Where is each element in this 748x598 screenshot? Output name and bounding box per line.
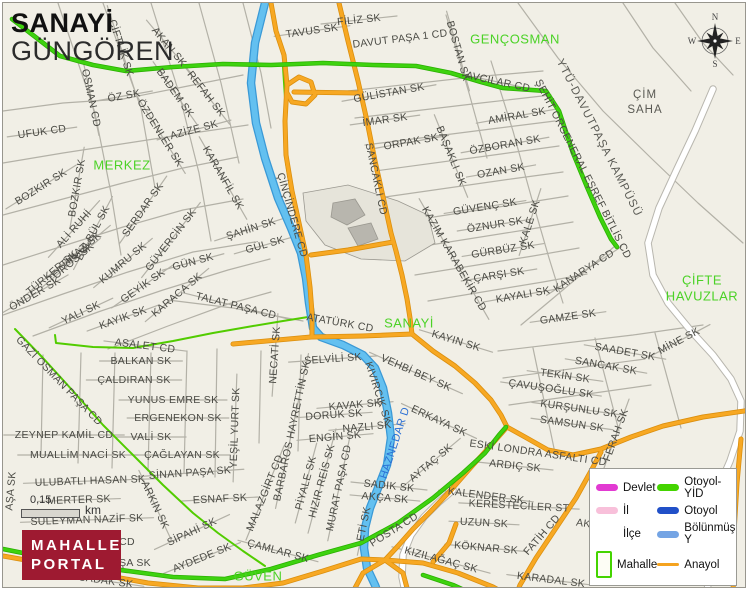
labelled-street: [350, 115, 419, 125]
labelled-street: [164, 543, 241, 574]
main-road-casing: [514, 452, 601, 587]
legend-label: Devlet: [623, 482, 656, 494]
labelled-street: [6, 165, 76, 209]
labelled-street: [530, 312, 606, 323]
minor-street: [3, 199, 243, 265]
labelled-street: [42, 238, 101, 287]
legend-swatch-icon: [657, 507, 679, 514]
legend-item-anayol: Anayol: [657, 559, 735, 571]
minor-street: [3, 75, 243, 111]
labelled-street: [20, 246, 83, 299]
labelled-street: [20, 518, 153, 523]
main-road: [294, 92, 358, 93]
labelled-street: [272, 314, 278, 396]
labelled-street: [461, 137, 549, 152]
labelled-street: [199, 137, 247, 220]
scale-unit: km: [85, 503, 101, 517]
labelled-street: [157, 120, 231, 140]
labelled-street: [449, 521, 519, 525]
labelled-street: [459, 503, 579, 509]
labelled-street: [112, 264, 175, 308]
minor-street: [33, 259, 270, 336]
labelled-street: [87, 305, 159, 331]
minor-street: [595, 338, 619, 431]
mahalle-portal-logo[interactable]: MAHALLE PORTAL: [22, 530, 121, 580]
labelled-street: [83, 61, 99, 136]
labelled-street: [96, 91, 153, 101]
labelled-street: [350, 495, 420, 501]
labelled-street: [139, 470, 171, 539]
labelled-street: [276, 354, 309, 509]
labelled-street: [584, 345, 665, 359]
labelled-street: [3, 275, 68, 313]
labelled-street: [48, 201, 99, 258]
labelled-street: [477, 462, 553, 470]
labelled-street: [445, 544, 527, 551]
labelled-street: [462, 244, 544, 257]
map-portal-screenshot: ÇİFTLİK SKAKAN SKBADEM SKREFAH SKOSMAN C…: [0, 0, 748, 598]
labelled-street: [603, 399, 629, 471]
legend: DevletOtoyol-YİDİlOtoyolİlçeBölünmüş YMa…: [589, 468, 737, 586]
labelled-street: [321, 16, 397, 24]
minor-street: [78, 353, 81, 463]
city-title: GÜNGÖREN: [11, 37, 174, 65]
minor-street: [259, 351, 261, 443]
legend-swatch-icon: [657, 563, 679, 566]
legend-item-mahalle: Mahalle: [596, 551, 657, 578]
minor-street: [148, 353, 151, 471]
legend-label: Mahalle: [617, 559, 657, 571]
compass-s: S: [712, 59, 717, 69]
legend-label: Otoyol-YİD: [684, 476, 735, 500]
labelled-street: [274, 26, 350, 37]
legend-label: Bölünmüş Y: [684, 522, 735, 546]
minor-street: [41, 355, 43, 455]
labelled-street: [531, 418, 613, 430]
minor-street: [415, 248, 579, 275]
labelled-street: [153, 62, 197, 125]
labelled-street: [215, 217, 288, 241]
labelled-street: [119, 176, 166, 244]
legend-item-b-l-nm-y: Bölünmüş Y: [657, 522, 735, 546]
labelled-street: [145, 268, 208, 321]
map-title: SANAYİ GÜNGÖREN: [11, 9, 174, 66]
compass-e: E: [735, 36, 741, 46]
legend-swatch-icon: [657, 484, 679, 491]
labelled-street: [461, 269, 536, 281]
scale-value: 0,15: [30, 494, 51, 506]
main-road: [507, 410, 745, 455]
labelled-street: [434, 115, 467, 198]
legend-swatch-icon: [657, 531, 679, 538]
legend-item-i-l: İl: [596, 505, 657, 517]
labelled-street: [501, 382, 602, 396]
legend-item-devlet: Devlet: [596, 482, 657, 494]
labelled-street: [476, 109, 557, 123]
labelled-street: [234, 236, 295, 254]
logo-line1: MAHALLE: [31, 536, 121, 556]
compass-n: N: [712, 12, 719, 22]
legend-swatch-icon: [596, 531, 618, 538]
minor-street: [112, 353, 115, 468]
labelled-street: [547, 247, 622, 295]
minor-street: [215, 349, 217, 477]
legend-item-i-l-e: İlçe: [596, 528, 657, 540]
legend-label: İl: [623, 505, 629, 517]
district-title: SANAYİ: [11, 9, 174, 37]
labelled-street: [70, 147, 84, 228]
labelled-street: [52, 225, 111, 274]
minor-street: [375, 146, 559, 171]
legend-label: İlçe: [623, 528, 641, 540]
labelled-street: [308, 429, 336, 533]
labelled-street: [233, 374, 237, 482]
legend-label: Otoyol: [684, 505, 717, 517]
minor-street: [521, 246, 615, 325]
legend-item-otoyol-yi-d: Otoyol-YİD: [657, 476, 735, 500]
labelled-street: [182, 497, 258, 501]
labelled-street: [7, 127, 76, 137]
minor-street: [503, 359, 645, 378]
logo-line2: PORTAL: [31, 555, 121, 575]
labelled-street: [162, 254, 224, 271]
main-road-casing: [412, 334, 507, 427]
legend-swatch-icon: [596, 507, 618, 514]
labelled-street: [23, 479, 156, 484]
scale-bar: [21, 509, 80, 518]
minor-street: [355, 95, 551, 118]
map-canvas[interactable]: ÇİFTLİK SKAKAN SKBADEM SKREFAH SKOSMAN C…: [2, 2, 746, 588]
main-road: [433, 524, 456, 562]
labelled-street: [402, 404, 477, 439]
labelled-street: [94, 238, 153, 287]
labelled-street: [49, 298, 113, 328]
labelled-street: [457, 219, 532, 231]
compass-rose-icon: N E S W: [687, 11, 743, 69]
legend-item-otoyol: Otoyol: [657, 505, 735, 517]
main-road: [339, 3, 412, 334]
legend-swatch-icon: [596, 484, 618, 491]
labelled-street: [135, 93, 186, 174]
minor-street: [623, 3, 691, 91]
labelled-street: [444, 201, 526, 214]
legend-label: Anayol: [684, 559, 719, 571]
minor-street: [533, 348, 555, 453]
labelled-street: [351, 482, 427, 490]
minor-street: [509, 385, 651, 405]
labelled-street: [296, 412, 372, 417]
legend-swatch-icon: [596, 551, 612, 578]
labelled-street: [328, 435, 350, 541]
building-area: [303, 185, 435, 261]
minor-street: [446, 15, 487, 158]
compass-w: W: [688, 36, 697, 46]
labelled-street: [182, 64, 229, 124]
